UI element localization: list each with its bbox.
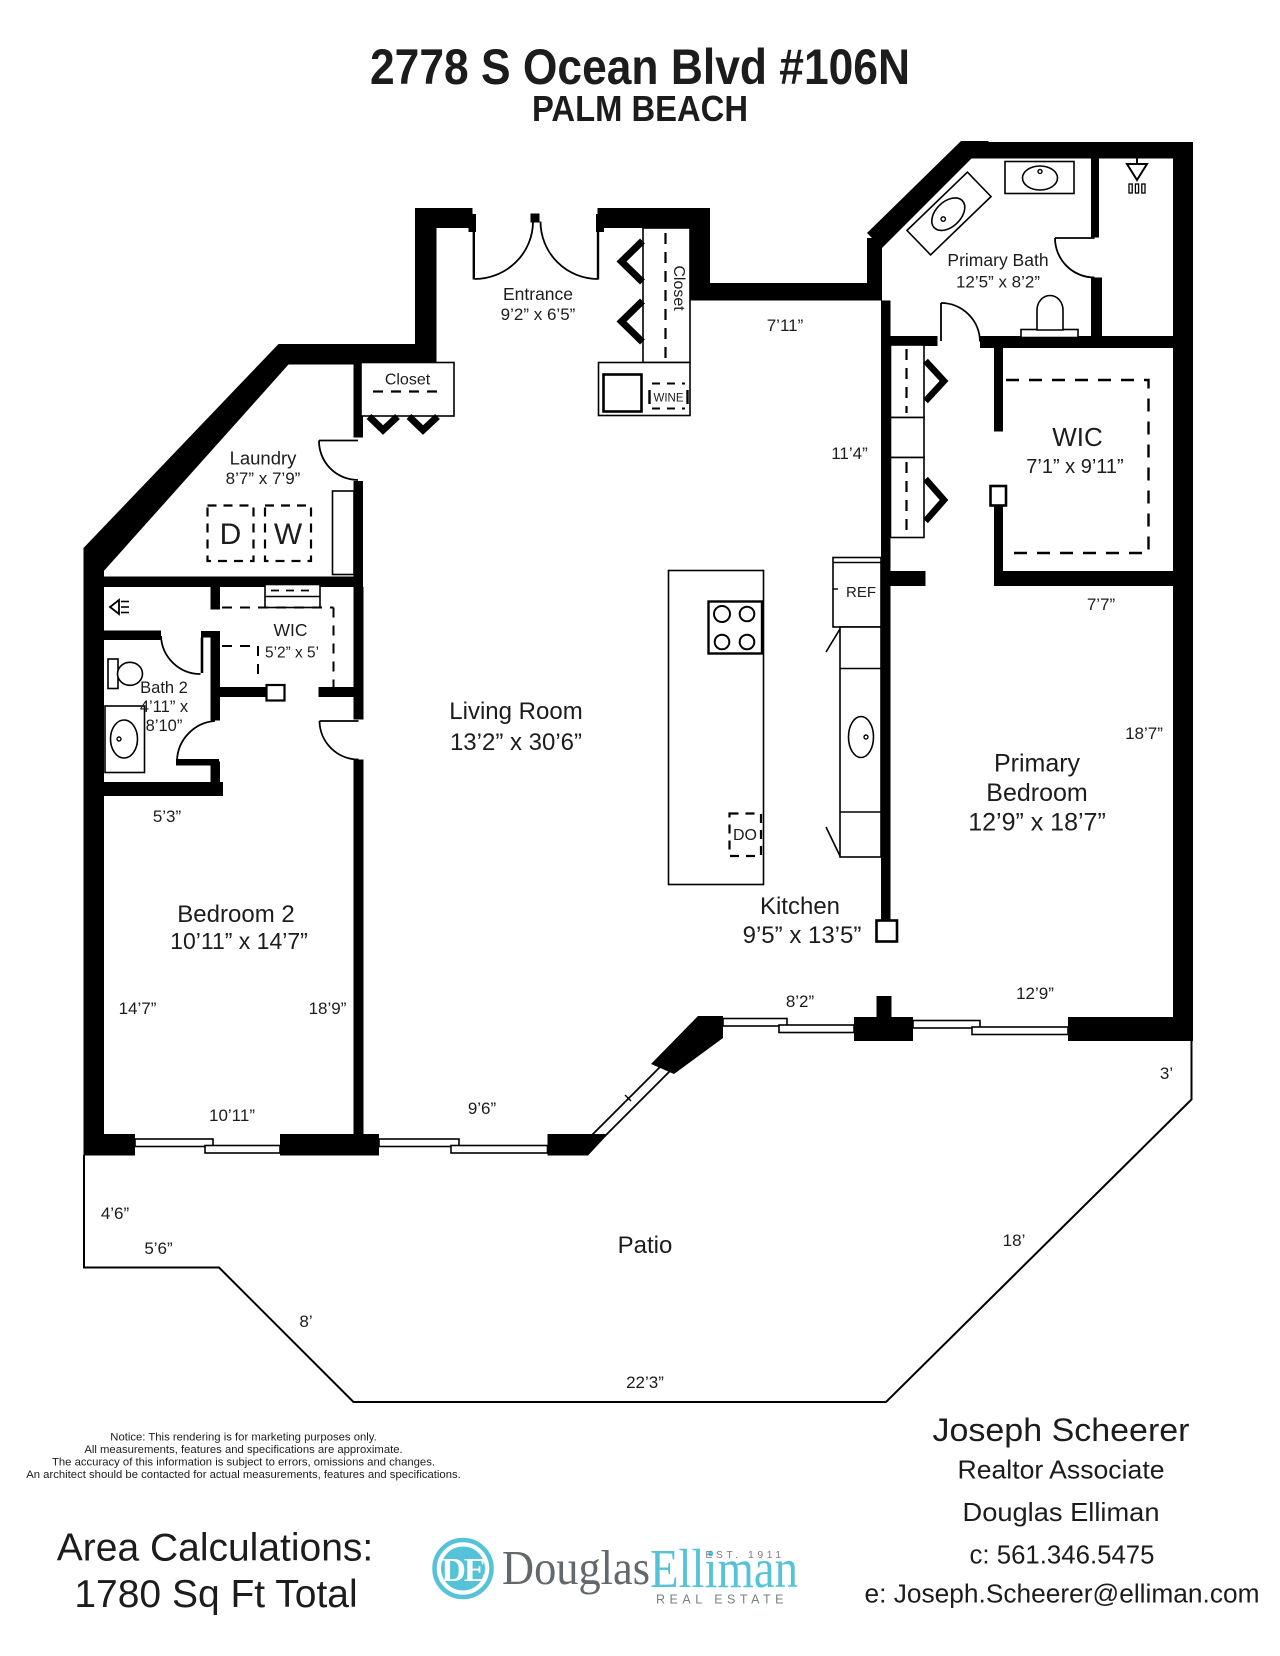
svg-text:9’2” x 6’5”: 9’2” x 6’5” [501,305,576,324]
svg-text:9’6”: 9’6” [468,1099,497,1118]
svg-text:WIC: WIC [1052,422,1103,452]
svg-text:18’7”: 18’7” [1125,724,1163,743]
svg-text:8’: 8’ [299,1312,312,1331]
svg-text:Douglas: Douglas [502,1540,650,1595]
svg-text:W: W [274,518,303,551]
svg-text:5’2” x 5’: 5’2” x 5’ [265,645,319,662]
svg-text:Closet: Closet [670,265,687,311]
svg-text:EST. 1911: EST. 1911 [705,1549,784,1561]
svg-text:Laundry: Laundry [230,448,298,469]
svg-text:8’7” x 7’9”: 8’7” x 7’9” [226,469,301,488]
svg-text:Kitchen: Kitchen [760,893,840,920]
svg-text:5’3”: 5’3” [153,807,182,826]
svg-text:22’3”: 22’3” [626,1373,664,1392]
svg-text:Bath 2: Bath 2 [140,679,188,697]
svg-text:4’6”: 4’6” [101,1204,130,1223]
svg-text:e: Joseph.Scheerer@elliman.com: e: Joseph.Scheerer@elliman.com [865,1581,1260,1609]
svg-text:Living Room: Living Room [449,698,582,725]
svg-text:REF: REF [846,584,876,601]
svg-text:14’7”: 14’7” [119,999,157,1018]
svg-text:Notice: This rendering is for: Notice: This rendering is for marketing … [110,1432,376,1444]
svg-text:5’6”: 5’6” [144,1239,173,1258]
svg-text:18’: 18’ [1003,1231,1026,1250]
svg-text:10’11”: 10’11” [209,1106,255,1125]
svg-text:D: D [220,518,242,551]
svg-text:9’5” x 13’5”: 9’5” x 13’5” [743,922,862,949]
svg-text:Bedroom: Bedroom [986,779,1087,807]
svg-text:7’11”: 7’11” [767,316,804,335]
svg-text:WINE: WINE [653,393,683,405]
svg-text:WIC: WIC [273,620,307,640]
svg-text:DE: DE [441,1552,485,1589]
svg-text:7’7”: 7’7” [1087,595,1116,614]
svg-text:3’: 3’ [1160,1064,1173,1083]
svg-text:18’9”: 18’9” [309,999,347,1018]
svg-text:Bedroom 2: Bedroom 2 [177,901,294,928]
svg-text:Entrance: Entrance [503,284,573,304]
svg-text:Joseph Scheerer: Joseph Scheerer [933,1412,1190,1448]
svg-text:Douglas Elliman: Douglas Elliman [963,1497,1160,1527]
svg-text:1780 Sq Ft Total: 1780 Sq Ft Total [74,1573,357,1616]
svg-text:Area Calculations:: Area Calculations: [57,1527,374,1570]
svg-text:All measurements, features and: All measurements, features and specifica… [84,1444,402,1456]
svg-text:12’9” x 18’7”: 12’9” x 18’7” [968,809,1106,837]
svg-text:13’2” x 30’6”: 13’2” x 30’6” [450,729,582,756]
svg-text:c: 561.346.5475: c: 561.346.5475 [970,1542,1155,1570]
svg-text:8’2”: 8’2” [786,992,815,1011]
svg-text:The accuracy of this informati: The accuracy of this information is subj… [52,1457,435,1469]
svg-text:12’9”: 12’9” [1016,984,1054,1003]
svg-text:An architect should be contact: An architect should be contacted for act… [26,1469,461,1481]
svg-text:11’4”: 11’4” [831,444,868,463]
svg-text:Realtor Associate: Realtor Associate [958,1455,1165,1485]
svg-text:Elliman: Elliman [650,1538,798,1599]
svg-text:REAL ESTATE: REAL ESTATE [656,1593,788,1607]
svg-text:DO: DO [733,827,757,844]
svg-text:Patio: Patio [618,1232,673,1259]
svg-text:PALM BEACH: PALM BEACH [532,88,748,129]
svg-text:10’11” x 14’7”: 10’11” x 14’7” [170,928,308,954]
svg-text:Primary: Primary [994,750,1081,778]
svg-text:8’10”: 8’10” [146,717,183,735]
svg-text:Primary Bath: Primary Bath [947,250,1048,270]
svg-text:12’5” x 8’2”: 12’5” x 8’2” [956,273,1040,292]
svg-text:Closet: Closet [385,372,431,389]
svg-text:4’11” x: 4’11” x [140,698,189,716]
svg-text:2778 S Ocean Blvd #106N: 2778 S Ocean Blvd #106N [370,39,910,95]
svg-text:7’1” x 9’11”: 7’1” x 9’11” [1026,456,1123,478]
